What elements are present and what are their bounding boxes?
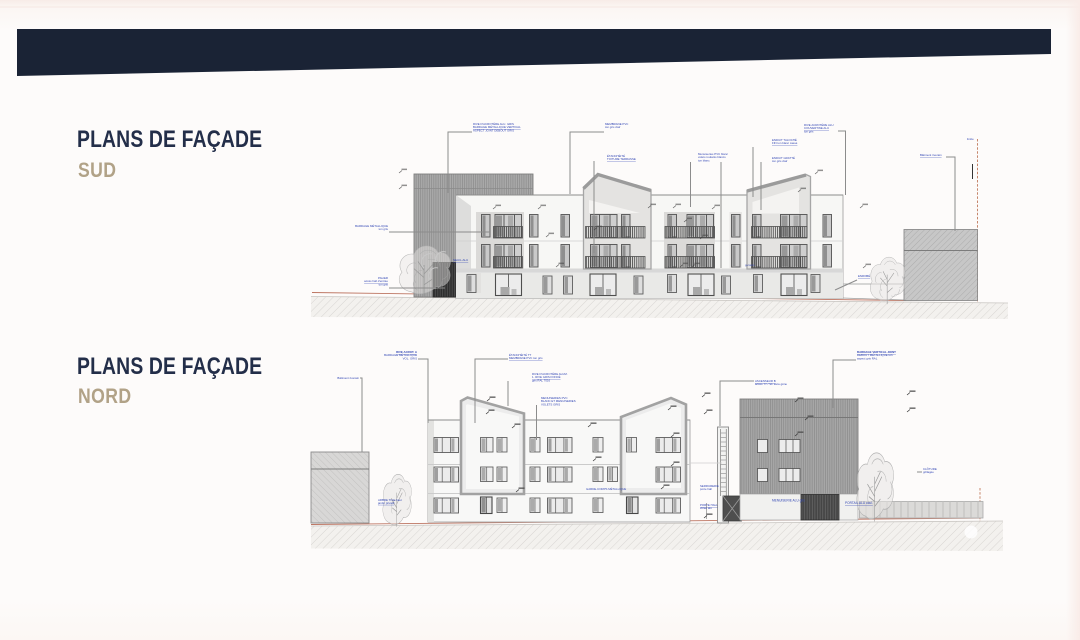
svg-text:ENROBÉ: ENROBÉ [858,273,870,278]
svg-text:grillagée: grillagée [923,470,934,474]
svg-text:ton blanc: ton blanc [698,158,710,162]
svg-text:Bâtiment riverain: Bâtiment riverain [920,153,942,157]
svg-text:accès TY / SF sans gêne: accès TY / SF sans gêne [755,382,787,386]
svg-text:VOL. GRIS: VOL. GRIS [403,356,417,360]
svg-text:ton gris: ton gris [379,227,389,231]
svg-text:MEMBRANE PVC ton gris: MEMBRANE PVC ton gris [509,356,543,360]
svg-text:ton gris: ton gris [804,129,814,133]
svg-text:ton gris clair: ton gris clair [605,125,621,129]
svg-text:aspect gris RAL: aspect gris RAL [857,356,878,360]
svg-text:ton gris: ton gris [379,282,389,286]
svg-text:ASPECT JOINT DEBOUT GRIS: ASPECT JOINT DEBOUT GRIS [473,128,514,132]
svg-text:g-corps: g-corps [745,263,755,267]
svg-text:MENUISERIE ALU gris: MENUISERIE ALU gris [772,499,805,503]
svg-text:gris RAL 7016: gris RAL 7016 [532,378,551,382]
svg-text:vitrée alu: vitrée alu [700,506,712,510]
svg-text:VOLETS GRIS: VOLETS GRIS [541,402,560,406]
svg-text:limite: limite [967,137,974,141]
svg-text:PORTAIL ALU coul.: PORTAIL ALU coul. [845,501,873,505]
svg-text:SEUIL ALU: SEUIL ALU [453,258,468,262]
svg-text:TOITURE TERRASSE: TOITURE TERRASSE [607,157,636,161]
svg-text:Bâtiment riverain: Bâtiment riverain [337,376,359,380]
svg-text:ton gris clair: ton gris clair [772,159,788,163]
svg-text:jardin privatif: jardin privatif [377,501,394,505]
svg-text:porte hall: porte hall [700,487,712,491]
svg-text:FIN ton blanc cassé: FIN ton blanc cassé [772,141,798,145]
svg-text:GARDE-CORPS MÉTALLIQUE: GARDE-CORPS MÉTALLIQUE [586,486,626,491]
